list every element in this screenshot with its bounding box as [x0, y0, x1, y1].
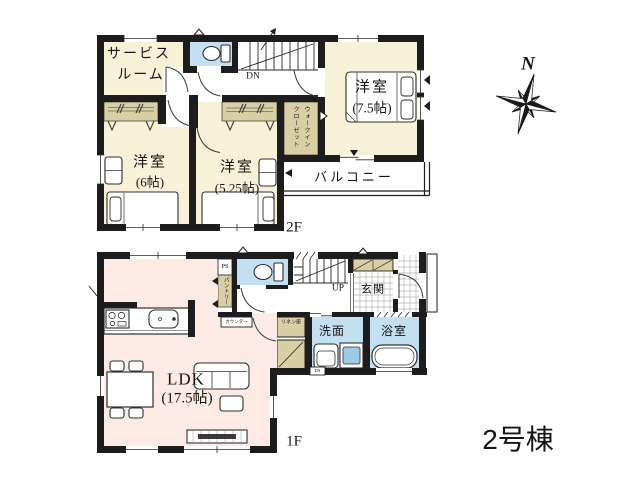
closet-bedroom6: [104, 102, 158, 121]
drain: [159, 318, 162, 321]
toilet-bowl: [203, 47, 220, 61]
label-bedroom6-name: 洋室: [133, 156, 167, 171]
wall-stairs-genkan: [348, 252, 353, 273]
label-wic-1: ウォークイン: [303, 106, 309, 148]
wall-service-bottom: [104, 95, 158, 102]
window-arrow-b: [424, 101, 430, 111]
porch-step: [427, 254, 437, 312]
label-bedroom6-size: (6帖): [136, 176, 164, 189]
vent-toilet1f: [238, 247, 248, 253]
chair: [129, 408, 143, 418]
label-linen: リネン庫: [281, 321, 301, 326]
wall-mid-b: [222, 95, 325, 102]
door-toilet2f: [198, 72, 221, 96]
faucet: [172, 317, 176, 321]
wall-525-right: [277, 95, 284, 231]
label-building-number: 2号棟: [482, 426, 554, 454]
tv: [198, 434, 236, 439]
wall-hall-ldk-b: [277, 312, 310, 317]
toilet-bowl: [254, 265, 272, 280]
label-counter: カウンター: [225, 320, 248, 325]
wall-toilet1-bottom-b: [266, 285, 288, 289]
wall-toilet2-right: [232, 42, 238, 73]
label-stairs-dn: DN: [246, 72, 260, 82]
wall-hall-ldk-c: [332, 312, 374, 317]
label-balcony: バルコニー: [314, 171, 394, 184]
wall-jamb-6: [158, 95, 166, 124]
label-compass-north: N: [521, 55, 535, 74]
label-ldk-name: LDK: [167, 371, 205, 388]
coffee-table: [220, 396, 243, 411]
floorplan-drawing: [0, 0, 640, 480]
balcony-slider: [340, 155, 374, 162]
chair: [129, 361, 143, 371]
vanity-bowl: [343, 347, 360, 364]
wall-jamb-525: [192, 102, 198, 128]
door-toilet1f: [241, 288, 265, 312]
floorplan-canvas: サービス ルーム 洋室 (6帖) 洋室 (5.25帖) 洋室 (7.5帖) ウォ…: [0, 0, 640, 480]
label-service-room-2: ルーム: [117, 69, 165, 83]
pillow: [110, 197, 121, 221]
stairs-down-arrow: [270, 28, 276, 35]
label-wic-2: クローゼット: [292, 106, 298, 148]
wall-kitchen-half-v: [188, 300, 195, 337]
walkin-closet-floor: [284, 102, 318, 155]
vent-genkan: [358, 248, 368, 254]
window-arrow-a: [424, 75, 430, 85]
wall-1f-left: [97, 252, 104, 453]
exterior-vent-mark: [89, 286, 97, 296]
label-service-room-1: サービス: [107, 48, 171, 62]
wall-toilet2-bottom-a: [190, 66, 197, 73]
wall-linen-wash: [305, 317, 312, 370]
label-bedroom75-size: (7.5帖): [352, 101, 391, 115]
wall-toilet1-stairs: [288, 259, 293, 285]
label-washroom: 洗面: [319, 325, 345, 337]
label-bedroom525-size: (5.25帖): [215, 182, 259, 195]
pillow: [401, 77, 413, 96]
label-genkan: 玄関: [361, 285, 385, 296]
wall-hall-ldk-a: [218, 312, 252, 317]
label-bathroom: 浴室: [381, 325, 407, 337]
wall-hall-ldk-d: [412, 312, 427, 317]
wall-kitchen-half-h: [103, 302, 137, 308]
wall-service-right: [183, 35, 190, 73]
wall-pantry-toilet: [232, 259, 237, 312]
stove-grill: [118, 322, 126, 327]
genkan-step-lines: [351, 273, 354, 312]
slider-washroom: [310, 312, 332, 317]
toilet-tank: [221, 45, 230, 62]
wall-2f-bottom: [97, 224, 284, 231]
doorway-75: [318, 68, 325, 97]
chair: [110, 408, 124, 418]
door-bedroom75: [294, 71, 318, 97]
label-bedroom525-name: 洋室: [220, 161, 254, 176]
dining-table: [107, 372, 153, 407]
toilet-tank: [274, 263, 283, 281]
label-stairs-up: UP: [332, 284, 344, 294]
pillow: [401, 100, 413, 119]
wall-2f-left: [97, 35, 104, 231]
wall-genkan-porch-a: [393, 270, 398, 274]
label-pipe-space: PS: [221, 264, 228, 271]
wall-toilet1-bottom-a: [237, 285, 240, 289]
porch-tile-grid: [398, 255, 419, 312]
chair: [110, 361, 124, 371]
stairs-1f: [293, 259, 348, 283]
label-floor-1f: 1F: [286, 435, 302, 450]
label-floor-2f: 2F: [286, 221, 302, 236]
label-bedroom75-name: 洋室: [355, 81, 389, 96]
vent-toilet2f: [194, 29, 204, 35]
label-duct-space: DS: [315, 369, 321, 374]
pillow: [263, 197, 274, 221]
label-ldk-size: (17.5帖): [161, 392, 212, 407]
compass-rose: [488, 66, 564, 142]
wall-genkan-porch-b: [393, 299, 398, 312]
label-pantry: パントリー: [222, 277, 228, 305]
